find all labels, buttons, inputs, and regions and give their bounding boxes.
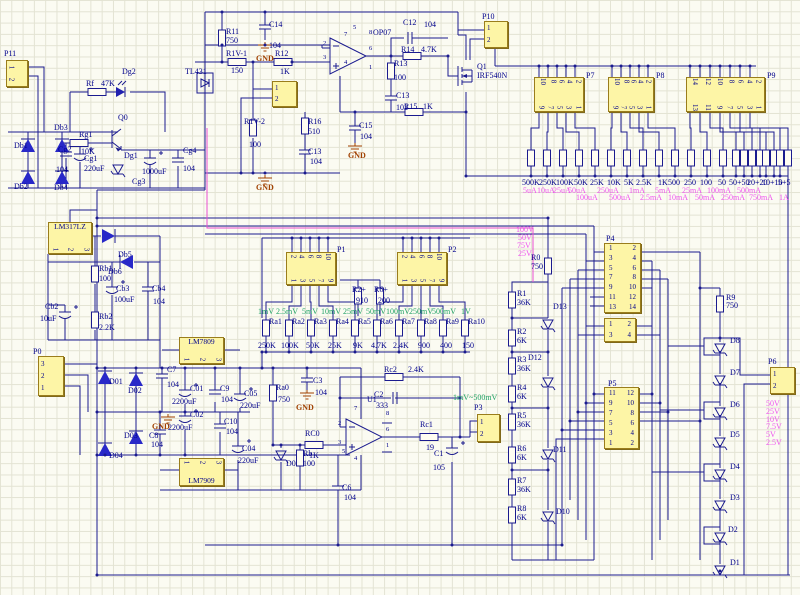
pin-number: 3 <box>82 248 89 252</box>
pin-number: 9 <box>437 279 444 283</box>
pin-number: 10 <box>627 400 634 407</box>
ref-r0: R0 <box>531 254 540 262</box>
pin-number: 2 <box>41 373 45 380</box>
val-c8: 104 <box>151 441 163 449</box>
pin-number: 1 <box>609 321 613 328</box>
val-c04: 220uF <box>238 457 258 465</box>
val-cb2: 10uF <box>40 315 56 323</box>
val-rb1: 100 <box>99 275 111 283</box>
ref-c13a: C13 <box>396 92 409 100</box>
ref-c3: C3 <box>313 377 322 385</box>
gnd-1: GND <box>256 55 274 63</box>
ref-c14: C14 <box>269 21 282 29</box>
ref-rg1: Rg1 <box>79 131 92 139</box>
val-r6: 6K <box>517 454 527 462</box>
pin-number: 1 <box>487 25 491 32</box>
ref-p8: P8 <box>656 72 664 80</box>
ref-d02: D02 <box>128 387 142 395</box>
connector-P8[interactable]: 10864297531 <box>608 77 654 112</box>
pin-number: 5 <box>419 279 426 283</box>
pin-number: 10 <box>539 78 546 85</box>
pin-number: 4 <box>566 80 573 84</box>
connector-P7[interactable]: 10864297531 <box>534 77 584 112</box>
ref-d3: D3 <box>730 494 740 502</box>
val-r15: 1K <box>423 103 433 111</box>
val-c9: 104 <box>221 396 233 404</box>
ref-cg3: Cg3 <box>132 178 145 186</box>
ref-c15: C15 <box>359 122 372 130</box>
val-ra6: 4.7K <box>371 342 387 350</box>
ref-d01: D01 <box>109 378 123 386</box>
ref-cg4: Cg4 <box>183 147 196 155</box>
pin-number: 3 <box>609 430 613 437</box>
val-r7: 36K <box>517 486 531 494</box>
pin-number: 10 <box>435 253 442 260</box>
ref-p11: P11 <box>4 50 16 58</box>
ref-c7: C7 <box>167 366 176 374</box>
pin-number: 2 <box>275 96 279 103</box>
pin-number: 2 <box>644 80 651 84</box>
cur-5: 100uA <box>576 194 598 202</box>
connector-P4B[interactable]: 1234 <box>604 318 636 342</box>
pin-number: 5 <box>609 265 613 272</box>
pin-number: 6 <box>736 80 743 84</box>
ref-r1v2: R1V-2 <box>244 118 265 126</box>
ref-ra9: Ra9 <box>446 318 459 326</box>
val-cg1: 220uF <box>84 165 104 173</box>
pin-number: 8 <box>314 255 321 259</box>
pin-number: 5 <box>628 106 635 110</box>
pin-number: 9 <box>326 279 333 283</box>
pin-op07-8: 8 <box>369 30 372 37</box>
mv-5: 25mV <box>343 308 363 316</box>
pin-number: 1 <box>574 106 581 110</box>
ref-p9: P9 <box>767 72 775 80</box>
connector-P3[interactable]: 12 <box>477 414 500 442</box>
ref-ra0: Ra0 <box>276 384 289 392</box>
pin-number: 4 <box>409 255 416 259</box>
ref-db2: Db2 <box>14 183 28 191</box>
pin-number: 2 <box>628 321 632 328</box>
pin-number: 2 <box>487 37 491 44</box>
ref-d12: D12 <box>528 354 542 362</box>
val-r1: 36K <box>517 299 531 307</box>
pin-number: 2 <box>755 80 762 84</box>
pin-number: 3 <box>41 361 45 368</box>
ref-d2: D2 <box>728 526 738 534</box>
val-rf: 47K <box>101 80 115 88</box>
val-r4: 6K <box>517 393 527 401</box>
pin-number: 9 <box>537 106 544 110</box>
pin-u1-6: 6 <box>386 427 389 434</box>
mv-8: 250mV <box>409 308 433 316</box>
ref-dg1: Dg1 <box>124 152 138 160</box>
pin-number: 2 <box>289 255 296 259</box>
pin-number: 3 <box>609 332 613 339</box>
pin-number: 4 <box>628 332 632 339</box>
val-r1v2: 100 <box>249 141 261 149</box>
ref-ra1: Ra1 <box>269 318 282 326</box>
ref-p0: P0 <box>33 348 41 356</box>
ref-r15: R15 <box>404 103 417 111</box>
ref-r12: R12 <box>275 50 288 58</box>
val-ra4: 25K <box>328 342 342 350</box>
ref-d10: D10 <box>556 508 570 516</box>
mv-6: 50mV <box>366 308 386 316</box>
val-cg3: 1000uF <box>142 168 166 176</box>
connector-P12[interactable]: 12 <box>272 81 297 107</box>
pin-number: 14 <box>691 78 698 85</box>
ref-r6: R6 <box>517 445 526 453</box>
pin-number: 2 <box>7 78 14 82</box>
pin-number: 7 <box>546 106 553 110</box>
pin-number: 9 <box>716 106 723 110</box>
ref-ra2: Ra2 <box>292 318 305 326</box>
ref-p4: P4 <box>606 235 614 243</box>
connector-LM7809[interactable]: LM7809123 <box>179 337 224 364</box>
pin-op07-3: 3 <box>323 55 326 62</box>
ref-d8: D8 <box>730 337 740 345</box>
val-rc2: 2.4K <box>408 366 424 374</box>
rng-v17: 5+5 <box>778 179 791 187</box>
ref-r1v1: R1V-1 <box>226 50 247 58</box>
mv-3: 5mV <box>302 308 318 316</box>
pin-number: 7 <box>609 274 613 281</box>
val-r5: 36K <box>517 421 531 429</box>
val-ra7: 2.4K <box>393 342 409 350</box>
pin-number: 3 <box>609 255 613 262</box>
ic-label: LM7909 <box>180 477 223 485</box>
val-rc1: 19 <box>426 444 434 452</box>
connector-P10[interactable]: 12 <box>484 21 508 48</box>
pin-number: 1 <box>609 245 613 252</box>
pin-number: 2 <box>480 431 484 438</box>
pin-number: 12 <box>704 78 711 85</box>
pin-number: 4 <box>298 255 305 259</box>
val-r2p: 910 <box>356 297 368 305</box>
val-r9: 750 <box>726 302 738 310</box>
connector-LM7909[interactable]: 123LM7909 <box>179 458 224 486</box>
pin-number: 8 <box>425 255 432 259</box>
pin-number: 1 <box>289 279 296 283</box>
pin-number: 12 <box>629 294 636 301</box>
pin-number: 1 <box>182 358 189 362</box>
pin-number: 9 <box>611 106 618 110</box>
pin-number: 1 <box>51 248 58 252</box>
ref-tl431: TL431 <box>185 68 207 76</box>
ref-rc2: Rc2 <box>384 366 397 374</box>
pin-u1-8: 8 <box>386 411 389 418</box>
ref-c6: C6 <box>342 484 351 492</box>
ref-db3: Db3 <box>54 124 68 132</box>
ref-r13: R13 <box>394 60 407 68</box>
cur-15: 250mA <box>721 194 745 202</box>
ref-p2: P2 <box>448 246 456 254</box>
val-cb4: 104 <box>153 298 165 306</box>
mv-2: 2.5mV <box>276 308 298 316</box>
pin-number: 5 <box>308 279 315 283</box>
pin-number: 1 <box>400 279 407 283</box>
pin-number: 11 <box>704 104 711 111</box>
ref-ra6: Ra6 <box>380 318 393 326</box>
pin-number: 4 <box>637 80 644 84</box>
pin-op07-7: 7 <box>344 32 347 39</box>
val-ra10: 150 <box>462 342 474 350</box>
gnd-2: GND <box>256 184 274 192</box>
ref-r7: R7 <box>517 477 526 485</box>
ref-c05: C05 <box>244 390 257 398</box>
pin-number: 4 <box>631 430 635 437</box>
ref-dg2: Dg2 <box>122 68 136 76</box>
ref-cg1: Cg1 <box>84 155 97 163</box>
ref-r3: R3 <box>517 356 526 364</box>
pin-number: 1 <box>773 371 777 378</box>
connector-P4[interactable]: 1234567891011121314 <box>604 243 641 313</box>
ref-d04: D04 <box>109 452 123 460</box>
pin-number: 2 <box>631 440 635 447</box>
pin-number: 6 <box>417 255 424 259</box>
ref-p1: P1 <box>337 246 345 254</box>
ref-c12: C12 <box>403 19 416 27</box>
ref-ra3: Ra3 <box>314 318 327 326</box>
pin-number: 6 <box>629 80 636 84</box>
ref-ra10: Ra10 <box>468 318 485 326</box>
pin-number: 11 <box>609 294 616 301</box>
pin-op07-6: 6 <box>369 46 372 53</box>
pin-number: 8 <box>622 80 629 84</box>
pin-number: 3 <box>214 461 221 465</box>
gnd-4: GND <box>296 404 314 412</box>
pin-number: 2 <box>198 358 205 362</box>
val-cb3: 100uF <box>114 296 134 304</box>
connector-P11[interactable]: 12 <box>6 60 28 87</box>
pin-number: 6 <box>631 420 635 427</box>
ref-db1: Db1 <box>14 142 28 150</box>
ref-ra7: Ra7 <box>402 318 415 326</box>
pin-number: 7 <box>725 106 732 110</box>
ref-d7: D7 <box>730 369 740 377</box>
pin-number: 5 <box>609 420 613 427</box>
pin-number: 8 <box>549 80 556 84</box>
ref-rb1: Rb1 <box>99 265 112 273</box>
ref-c02: C02 <box>190 411 203 419</box>
connector-P0[interactable]: 321 <box>38 356 64 396</box>
ref-c8: C8 <box>149 432 158 440</box>
pin-number: 7 <box>619 106 626 110</box>
val-ra9: 400 <box>440 342 452 350</box>
val-r3: 36K <box>517 365 531 373</box>
val-rb: 100 <box>303 460 315 468</box>
val-cg2: 104 <box>56 166 68 174</box>
ref-p10: P10 <box>482 13 494 21</box>
ref-p3: P3 <box>474 404 482 412</box>
pin-number: 1 <box>755 106 762 110</box>
ref-db4: Db4 <box>54 184 68 192</box>
schematic-canvas: 1212121212321108642975311086429753114121… <box>0 0 800 595</box>
ref-r4: R4 <box>517 384 526 392</box>
val-c13b: 104 <box>310 158 322 166</box>
val-r6p: 200 <box>378 297 390 305</box>
ref-u1: U1 <box>367 396 377 404</box>
val-c6: 104 <box>344 494 356 502</box>
cur-11: 10mA <box>668 194 688 202</box>
ref-r14: R14 <box>401 46 414 54</box>
ref-ra5: Ra5 <box>358 318 371 326</box>
ref-r2: R2 <box>517 328 526 336</box>
wire-magenta-sense <box>207 128 533 282</box>
gnd-3: GND <box>348 152 366 160</box>
ref-d6: D6 <box>730 401 740 409</box>
connector-P5[interactable]: 111291078563412 <box>604 387 639 449</box>
pin-number: 2 <box>773 383 777 390</box>
connector-P6[interactable]: 12 <box>770 367 795 394</box>
ref-q0: Q0 <box>118 114 128 122</box>
val-ra5: 9K <box>353 342 363 350</box>
cur-18: 1A <box>779 194 789 202</box>
connector-P9[interactable]: 1412108642131197531 <box>686 77 765 112</box>
val-r1v1: 150 <box>231 67 243 75</box>
ref-d03: D03 <box>124 432 138 440</box>
connector-P2[interactable]: 24681013579 <box>397 252 447 285</box>
val-cg4: 104 <box>183 165 195 173</box>
pin-number: 3 <box>409 279 416 283</box>
pin-number: 1 <box>644 106 651 110</box>
ref-c01: C01 <box>190 385 203 393</box>
ref-ra8: Ra8 <box>424 318 437 326</box>
mv-10: 1V <box>461 308 471 316</box>
ref-op07: OP07 <box>373 29 391 37</box>
val-r13: 100 <box>394 74 406 82</box>
cur-9: 2.5mA <box>640 194 662 202</box>
ref-d13: D13 <box>553 303 567 311</box>
pin-number: 3 <box>298 279 305 283</box>
ref-r11: R11 <box>226 28 239 36</box>
val-r16: 510 <box>308 128 320 136</box>
ref-c04: C04 <box>242 445 255 453</box>
ref-rb2: Rb2 <box>99 313 112 321</box>
ref-r6p: R6+ <box>374 286 388 294</box>
pin-number: 11 <box>609 390 616 397</box>
pin-number: 4 <box>746 80 753 84</box>
pin-number: 10 <box>716 78 723 85</box>
pin-u1-5: 5 <box>342 449 345 456</box>
val-r2: 6K <box>517 337 527 345</box>
ref-r16: R16 <box>308 118 321 126</box>
pin-number: 1 <box>7 66 14 70</box>
pin-number: 10 <box>629 284 636 291</box>
pin-number: 6 <box>633 265 637 272</box>
ref-d4: D4 <box>730 463 740 471</box>
val-ra0: 750 <box>278 396 290 404</box>
pin-number: 10 <box>613 78 620 85</box>
val-q1: IRF540N <box>477 72 507 80</box>
val-ra2: 100K <box>281 342 299 350</box>
pin-number: 9 <box>609 400 613 407</box>
val-c3: 104 <box>315 389 327 397</box>
val-c7: 104 <box>167 381 179 389</box>
pin-number: 2 <box>574 80 581 84</box>
pin-number: 6 <box>557 80 564 84</box>
val-ra8: 900 <box>418 342 430 350</box>
val-r0: 750 <box>531 263 543 271</box>
val-ra3: 50K <box>306 342 320 350</box>
ref-cb3: Cb3 <box>116 285 129 293</box>
ref-d0: D0 <box>286 460 296 468</box>
pin-number: 2 <box>633 245 637 252</box>
ref-db5: Db5 <box>118 251 132 259</box>
pin-number: 3 <box>636 106 643 110</box>
ref-rc1: Rc1 <box>420 421 433 429</box>
val-rb2: 2.2K <box>99 324 115 332</box>
pin-number: 13 <box>691 104 698 111</box>
val-ra1: 250K <box>258 342 276 350</box>
pin-number: 5 <box>735 106 742 110</box>
mv-4: 10mV <box>321 308 341 316</box>
ref-c9: C9 <box>220 385 229 393</box>
pin-number: 7 <box>317 279 324 283</box>
cur-7: 500uA <box>609 194 631 202</box>
val-c01: 2200uF <box>172 398 196 406</box>
ref-d1: D1 <box>730 559 740 567</box>
pin-number: 8 <box>631 410 635 417</box>
pin-op07-4: 4 <box>344 60 347 67</box>
mv-1: 1mV <box>258 308 274 316</box>
ref-r2p: R2+ <box>352 286 366 294</box>
pin-number: 2 <box>67 248 74 252</box>
ref-d11: D11 <box>553 446 566 454</box>
pin-number: 2 <box>198 461 205 465</box>
ref-r1: R1 <box>517 290 526 298</box>
pin-number: 5 <box>556 106 563 110</box>
val-r14: 4.7K <box>421 46 437 54</box>
ref-c13b: C13 <box>308 148 321 156</box>
ref-cb2: Cb2 <box>45 303 58 311</box>
ic-label: LM317LZ <box>49 223 91 231</box>
pin-number: 3 <box>214 358 221 362</box>
pin-number: 8 <box>727 80 734 84</box>
pin-number: 14 <box>629 304 636 311</box>
pin-number: 7 <box>609 410 613 417</box>
cur-1: 5uA <box>523 187 537 195</box>
ref-c10: C10 <box>224 418 237 426</box>
pin-u1-7: 7 <box>354 406 357 413</box>
mv-9: 500mV <box>432 308 456 316</box>
val-c1: 105 <box>433 464 445 472</box>
pin-number: 12 <box>627 390 634 397</box>
ref-rf: Rf <box>86 80 94 88</box>
pin-number: 1 <box>609 440 613 447</box>
val-c10: 104 <box>226 428 238 436</box>
ref-c1: C1 <box>434 450 443 458</box>
pin-number: 13 <box>609 304 616 311</box>
ref-rb: Rb <box>303 450 312 458</box>
ref-cg2: Cg2 <box>58 146 71 154</box>
pin-number: 9 <box>609 284 613 291</box>
ref-cb4: Cb4 <box>152 285 165 293</box>
pin-op07-1: 1 <box>369 65 372 72</box>
pin-number: 1 <box>275 85 279 92</box>
pin-u1-1: 1 <box>386 443 389 450</box>
pin-number: 3 <box>745 106 752 110</box>
connector-LM317LZ[interactable]: LM317LZ123 <box>48 222 92 254</box>
ref-p5: P5 <box>608 380 616 388</box>
val-r8: 6K <box>517 514 527 522</box>
ref-r5: R5 <box>517 412 526 420</box>
ref-p7: P7 <box>586 72 594 80</box>
lv-6: 2.5V <box>766 439 782 447</box>
ref-d5: D5 <box>730 431 740 439</box>
connector-P1[interactable]: 24681013579 <box>286 252 336 285</box>
